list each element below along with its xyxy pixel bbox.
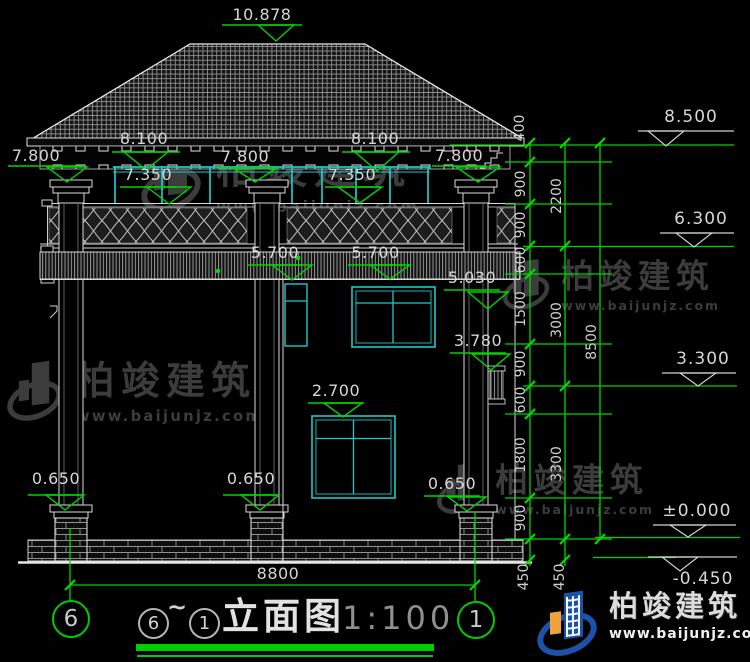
chain1-dim: 900 <box>513 171 529 198</box>
chain1-dim: 1500 <box>513 291 529 327</box>
dim-eave-right: 7.800 <box>432 147 486 165</box>
chain2-dim: 450 <box>552 564 568 591</box>
title-underline-thick <box>136 644 434 651</box>
chain1-dim: 600 <box>513 387 529 414</box>
dim-eave-left: 7.800 <box>6 147 66 165</box>
chain1-dim: 1800 <box>513 437 529 473</box>
dim-pedestal-mid: 0.650 <box>223 470 279 488</box>
footer-logo: 柏竣建筑 www.baijunjz.com <box>536 592 750 656</box>
footer-logo-url: www.baijunjz.com <box>609 626 750 642</box>
dim-total-width: 8800 <box>250 565 306 583</box>
title-tilde: ~ <box>167 593 187 621</box>
level-minus-0450: -0.450 <box>668 570 738 589</box>
cad-elevation-screenshot: 柏竣建筑 www.baijunjz.com 柏竣建筑 www.baijunjz.… <box>0 0 750 662</box>
level-8500: 8.500 <box>648 108 734 127</box>
footer-logo-name: 柏竣建筑 <box>609 592 750 621</box>
chain2-dim: 3300 <box>549 446 565 482</box>
dim-eave-mid-left: 8.100 <box>112 130 176 148</box>
title-axis-from: 6 <box>138 608 169 639</box>
chain2-dim: 3000 <box>549 302 565 338</box>
chain3-dim: 8500 <box>584 324 600 360</box>
chain1-dim: 900 <box>513 351 529 378</box>
dim-window-top-right: 7.350 <box>324 166 380 184</box>
dim-5030: 5.030 <box>444 269 500 287</box>
dim-balcony-right: 5.700 <box>348 244 403 262</box>
dim-eave-mid: 7.800 <box>218 148 272 166</box>
dim-ridge: 10.878 <box>228 6 296 24</box>
level-3300: 3.300 <box>670 350 736 369</box>
chain1-dim: 900 <box>513 212 529 239</box>
grid-bubble-6: 6 <box>52 600 90 638</box>
chain1-dim: 600 <box>513 247 529 274</box>
title-axis-to: 1 <box>189 608 220 639</box>
chain1-dim: 900 <box>513 505 529 532</box>
elevation-linework <box>0 0 750 662</box>
dim-balcony-left: 5.700 <box>248 244 302 262</box>
title-underline-thin <box>137 655 433 657</box>
chain1-dim: 400 <box>512 115 528 142</box>
chain1-dim: 450 <box>516 564 532 591</box>
footer-logo-icon <box>536 592 600 656</box>
level-6300: 6.300 <box>668 210 734 229</box>
level-0000: ±0.000 <box>658 502 736 521</box>
dim-eave-mid-right: 8.100 <box>342 130 408 148</box>
dim-window-top-left: 7.350 <box>120 166 176 184</box>
sheet-title: 立面图 <box>222 598 345 635</box>
dim-3780: 3.780 <box>450 332 506 350</box>
dim-2700: 2.700 <box>308 382 364 400</box>
dim-pedestal-left: 0.650 <box>28 470 84 488</box>
sheet-scale: 1:100 <box>342 602 454 634</box>
chain2-dim: 2200 <box>549 178 565 214</box>
dim-pedestal-right: 0.650 <box>424 475 480 493</box>
grid-bubble-1: 1 <box>457 601 495 639</box>
